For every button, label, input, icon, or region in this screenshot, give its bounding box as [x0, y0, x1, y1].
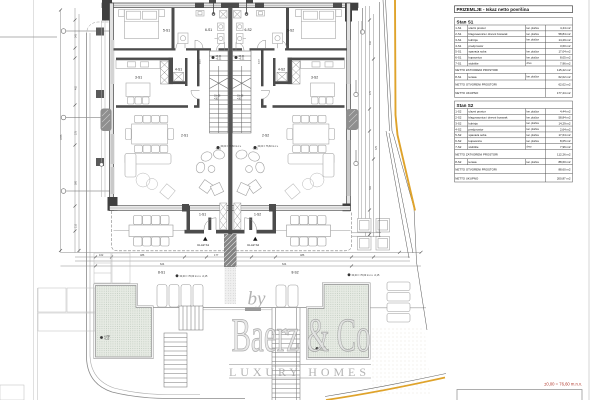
svg-text:5-S1: 5-S1	[455, 50, 461, 54]
svg-text:2,64 m2: 2,64 m2	[560, 127, 571, 131]
svg-text:terasa: terasa	[469, 75, 477, 79]
svg-text:ULAZ S2: ULAZ S2	[247, 243, 260, 247]
svg-text:462: 462	[75, 85, 78, 90]
svg-text:PRIZEMLJE - Iskaz netto površi: PRIZEMLJE - Iskaz netto površina	[457, 7, 530, 12]
svg-text:1-S1: 1-S1	[199, 213, 206, 217]
svg-text:58,84 m2: 58,84 m2	[558, 32, 570, 36]
svg-text:8-S2: 8-S2	[455, 160, 461, 164]
svg-text:1-S2: 1-S2	[455, 110, 461, 114]
svg-text:ker. pločice: ker. pločice	[527, 111, 540, 114]
svg-text:predprostor: predprostor	[469, 44, 484, 48]
svg-text:4-S2: 4-S2	[455, 127, 461, 131]
svg-text:ker. pločice: ker. pločice	[527, 56, 540, 59]
svg-text:kupaonica: kupaonica	[469, 139, 483, 143]
svg-text:62,02 m2: 62,02 m2	[558, 75, 570, 79]
svg-text:2-S2: 2-S2	[455, 116, 461, 120]
svg-text:spavaća soba: spavaća soba	[469, 133, 487, 137]
svg-text:LUXURY HOMES: LUXURY HOMES	[229, 365, 370, 379]
svg-text:15,34: 15,34	[239, 56, 245, 58]
svg-text:590: 590	[75, 180, 78, 185]
svg-text:1975: 1975	[60, 134, 63, 140]
svg-text:115,22 m2: 115,22 m2	[557, 68, 571, 72]
svg-text:3-S2: 3-S2	[455, 121, 461, 125]
svg-text:177,24 m2: 177,24 m2	[557, 91, 571, 95]
svg-text:17,04 m2: 17,04 m2	[558, 50, 570, 54]
svg-text:4-S1: 4-S1	[175, 68, 182, 72]
svg-text:7,96 m2: 7,96 m2	[560, 145, 571, 149]
svg-text:ker. pločice: ker. pločice	[527, 50, 540, 53]
svg-text:624: 624	[282, 262, 287, 266]
svg-text:6-S1: 6-S1	[205, 28, 212, 32]
svg-text:drvo: drvo	[527, 62, 532, 65]
svg-text:58,84 m2: 58,84 m2	[558, 116, 570, 120]
svg-text:5-S2: 5-S2	[287, 29, 294, 33]
svg-text:by: by	[248, 289, 267, 310]
svg-text:+0,21: +0,21	[239, 59, 246, 61]
svg-text:3-S1: 3-S1	[135, 76, 142, 80]
svg-text:375: 375	[375, 145, 378, 150]
svg-text:14,29 m2: 14,29 m2	[558, 121, 570, 125]
svg-text:6-S2: 6-S2	[245, 28, 252, 32]
svg-text:4-S2: 4-S2	[278, 68, 285, 72]
svg-text:2-S1: 2-S1	[181, 134, 188, 138]
svg-text:62,02 m2: 62,02 m2	[558, 83, 570, 87]
svg-text:8,05 m2: 8,05 m2	[560, 139, 571, 143]
svg-text:210: 210	[75, 223, 78, 228]
svg-text:±0,00 = 76,60 m.n.v.: ±0,00 = 76,60 m.n.v.	[221, 146, 242, 148]
svg-text:7,96 m2: 7,96 m2	[560, 61, 571, 65]
svg-text:kupaonica: kupaonica	[469, 56, 483, 60]
svg-text:6-S1: 6-S1	[455, 56, 461, 60]
svg-text:3,60 m2: 3,60 m2	[560, 44, 571, 48]
svg-text:275: 275	[75, 130, 78, 135]
svg-text:±0,00 = 76,60 m.n.v.: ±0,00 = 76,60 m.n.v.	[544, 382, 582, 387]
svg-text:ker. pločice: ker. pločice	[527, 27, 540, 30]
svg-text:5-S2: 5-S2	[455, 133, 461, 137]
svg-text:ker. pločice: ker. pločice	[527, 122, 540, 125]
svg-text:4,44 m2: 4,44 m2	[560, 26, 571, 30]
svg-text:ker. pločice: ker. pločice	[527, 116, 540, 119]
svg-text:4x18: 4x18	[259, 58, 261, 64]
svg-text:±0,00 = 76,60 m.n.v. -0,15: ±0,00 = 76,60 m.n.v. -0,15	[180, 275, 208, 278]
svg-text:8-S2: 8-S2	[292, 271, 299, 275]
svg-text:stubište: stubište	[469, 61, 479, 65]
svg-text:±0,00 = 76,60 m.n.v. -0,15: ±0,00 = 76,60 m.n.v. -0,15	[352, 274, 380, 277]
svg-text:2-S2: 2-S2	[262, 134, 269, 138]
svg-text:10x18: 10x18	[237, 96, 244, 98]
svg-text:88,60 m2: 88,60 m2	[558, 160, 570, 164]
svg-text:8,05 m2: 8,05 m2	[560, 56, 571, 60]
svg-text:5-S1: 5-S1	[163, 29, 170, 33]
svg-text:+1,50: +1,50	[104, 336, 111, 338]
svg-text:3-S1: 3-S1	[455, 38, 461, 42]
svg-text:8-S1: 8-S1	[158, 271, 165, 275]
svg-text:-0,15: -0,15	[104, 339, 110, 341]
svg-text:4-S1: 4-S1	[455, 44, 461, 48]
svg-text:blagovaonica i dnevni boravak: blagovaonica i dnevni boravak	[469, 116, 508, 120]
svg-text:1-S2: 1-S2	[254, 213, 261, 217]
svg-text:ULAZ S1: ULAZ S1	[197, 243, 210, 247]
svg-text:486: 486	[300, 253, 305, 257]
svg-text:6-S2: 6-S2	[455, 139, 461, 143]
svg-text:stubište: stubište	[469, 145, 479, 149]
svg-text:624: 624	[160, 262, 165, 266]
svg-text:17,64 m2: 17,64 m2	[558, 133, 570, 137]
svg-text:NETTO ZATVORENI PROSTORI: NETTO ZATVORENI PROSTORI	[455, 68, 498, 72]
svg-text:kuhinja: kuhinja	[469, 121, 479, 125]
svg-text:ker. pločice: ker. pločice	[527, 76, 540, 79]
svg-text:10x18: 10x18	[214, 96, 221, 98]
svg-text:±0,00 = 76,60 m.n.v.: ±0,00 = 76,60 m.n.v.	[258, 146, 279, 148]
svg-text:kuhinja: kuhinja	[469, 38, 479, 42]
svg-text:terasa: terasa	[469, 160, 477, 164]
svg-text:ker. pločice: ker. pločice	[527, 39, 540, 42]
svg-text:162: 162	[99, 253, 104, 257]
svg-text:ulazni prostor: ulazni prostor	[469, 110, 486, 114]
svg-text:spavaća soba: spavaća soba	[469, 50, 487, 54]
svg-text:+0,21: +0,21	[216, 59, 223, 61]
svg-text:NETTO UKUPNO: NETTO UKUPNO	[455, 91, 479, 95]
svg-text:345: 345	[75, 33, 78, 38]
svg-text:NETTO OTVORENI PROSTORI: NETTO OTVORENI PROSTORI	[455, 83, 497, 87]
svg-text:ulazni prostor: ulazni prostor	[469, 26, 486, 30]
svg-text:3-S2: 3-S2	[311, 76, 318, 80]
svg-text:15,34: 15,34	[216, 56, 222, 58]
svg-text:7-S2: 7-S2	[455, 145, 461, 149]
svg-text:4,44 m2: 4,44 m2	[560, 110, 571, 114]
svg-text:177: 177	[214, 253, 219, 257]
svg-text:blagovaonica i dnevni boravak: blagovaonica i dnevni boravak	[469, 32, 508, 36]
svg-text:200,87 m2: 200,87 m2	[557, 176, 571, 180]
svg-text:ker. pločice: ker. pločice	[527, 128, 540, 131]
svg-text:ker. pločice: ker. pločice	[527, 134, 540, 137]
svg-text:-0,15: -0,15	[253, 149, 259, 151]
svg-text:drvo: drvo	[527, 146, 532, 149]
svg-text:ker. pločice: ker. pločice	[527, 140, 540, 143]
svg-text:7-S1: 7-S1	[455, 61, 461, 65]
svg-text:8-S1: 8-S1	[455, 75, 461, 79]
svg-text:14,29 m2: 14,29 m2	[558, 38, 570, 42]
svg-text:486: 486	[140, 253, 145, 257]
svg-text:predprostor: predprostor	[469, 127, 484, 131]
svg-text:112,26 m2: 112,26 m2	[557, 153, 571, 157]
svg-text:Baerz & Co: Baerz & Co	[232, 309, 371, 362]
svg-text:NETTO UKUPNO: NETTO UKUPNO	[455, 176, 479, 180]
svg-text:4x18: 4x18	[200, 58, 202, 64]
svg-text:ker. pločice: ker. pločice	[527, 33, 540, 36]
svg-text:Stan S1: Stan S1	[457, 19, 474, 24]
svg-text:ker. pločice: ker. pločice	[527, 161, 540, 164]
svg-text:1-S1: 1-S1	[455, 26, 461, 30]
svg-text:2-S1: 2-S1	[455, 32, 461, 36]
svg-text:Stan S2: Stan S2	[457, 103, 474, 108]
svg-text:88,60 m2: 88,60 m2	[558, 168, 570, 172]
svg-text:NETTO ZATVORENI PROSTORI: NETTO ZATVORENI PROSTORI	[455, 153, 498, 157]
svg-text:NETTO OTVORENI PROSTORI: NETTO OTVORENI PROSTORI	[455, 168, 497, 172]
